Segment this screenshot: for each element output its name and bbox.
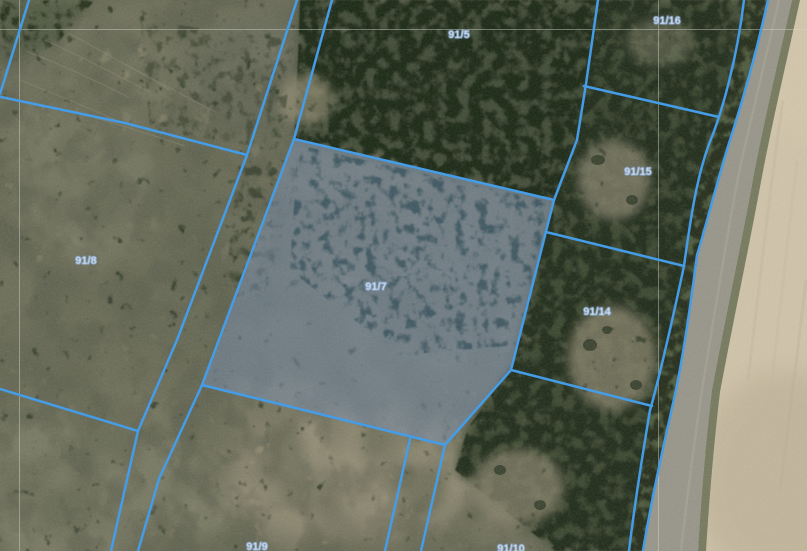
svg-text:91/15: 91/15	[624, 166, 652, 178]
svg-text:91/7: 91/7	[365, 281, 386, 293]
svg-text:91/10: 91/10	[497, 543, 525, 551]
svg-text:91/16: 91/16	[653, 15, 681, 27]
svg-text:91/14: 91/14	[583, 306, 611, 318]
svg-text:91/9: 91/9	[246, 541, 267, 551]
svg-text:91/8: 91/8	[75, 255, 96, 267]
svg-text:91/5: 91/5	[448, 29, 469, 41]
